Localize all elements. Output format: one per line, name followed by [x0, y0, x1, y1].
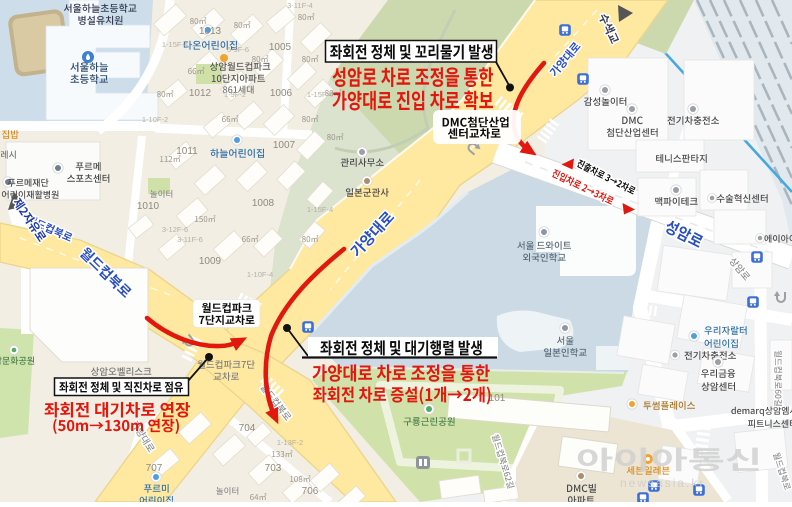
svg-text:1013: 1013	[199, 26, 222, 37]
svg-text:3-12F-6: 3-12F-6	[162, 225, 188, 234]
svg-text:1-15F-4: 1-15F-4	[307, 90, 333, 99]
svg-text:1-9F-2: 1-9F-2	[224, 90, 246, 99]
svg-text:1-13F-2: 1-13F-2	[277, 438, 303, 447]
svg-text:703: 703	[265, 463, 282, 474]
svg-text:1006: 1006	[270, 88, 293, 99]
svg-text:1005: 1005	[269, 42, 292, 53]
svg-text:1012: 1012	[189, 88, 212, 99]
svg-text:1-10F-4: 1-10F-4	[247, 270, 273, 279]
svg-text:3-11F-4: 3-11F-4	[287, 1, 313, 10]
svg-text:704: 704	[239, 423, 256, 434]
svg-text:1-15F-4: 1-15F-4	[162, 40, 188, 49]
svg-text:1007: 1007	[273, 140, 296, 151]
svg-text:707: 707	[146, 463, 163, 474]
svg-text:1-15F-4: 1-15F-4	[307, 205, 333, 214]
svg-text:706: 706	[302, 486, 319, 497]
svg-text:1-10F-2: 1-10F-2	[142, 115, 168, 124]
svg-text:1010: 1010	[137, 201, 160, 212]
svg-text:1008: 1008	[252, 198, 275, 209]
svg-text:101: 101	[489, 393, 506, 404]
svg-text:newsasia.kr: newsasia.kr	[620, 476, 705, 490]
svg-text:1009: 1009	[199, 256, 222, 267]
svg-text:5-9F-6: 5-9F-6	[227, 45, 249, 54]
svg-text:3-11F-6: 3-11F-6	[177, 235, 203, 244]
